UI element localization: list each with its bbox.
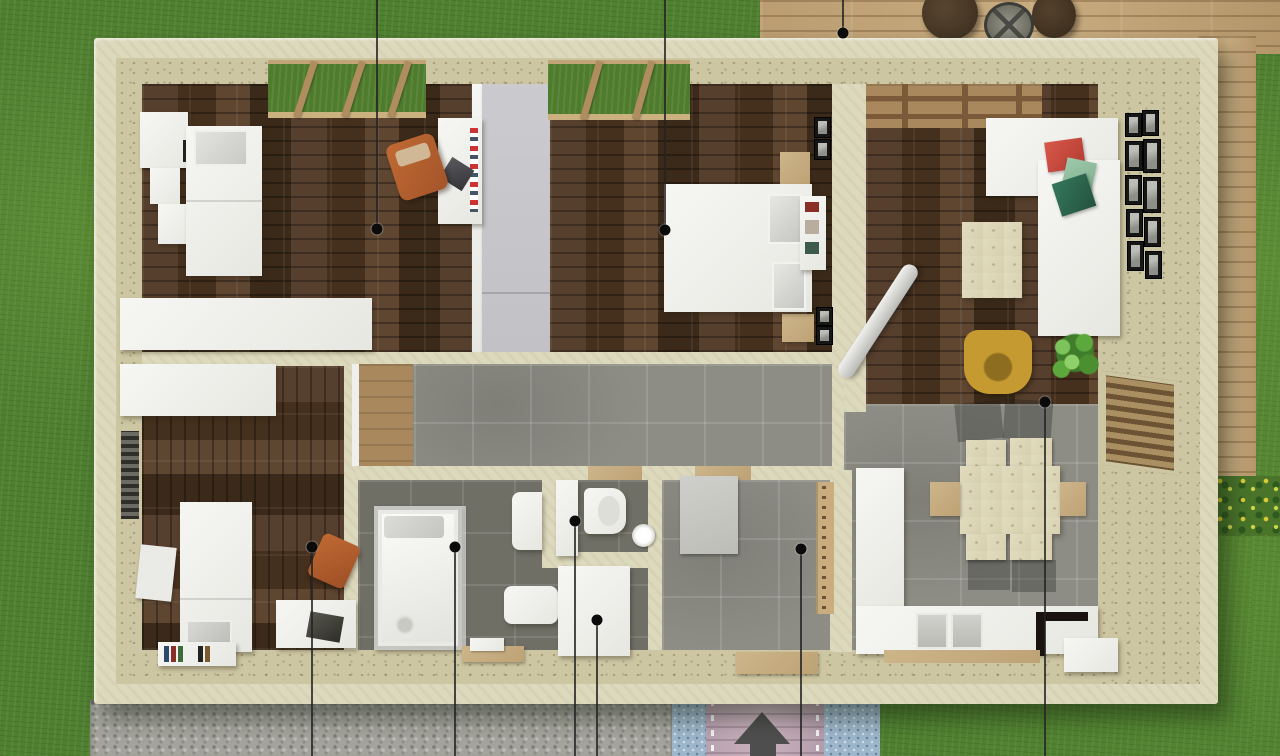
lounge-chair-mustard <box>964 330 1032 394</box>
chair-headrest <box>394 142 431 168</box>
dining-chair-left <box>930 482 960 516</box>
hotspot-dot[interactable] <box>372 224 383 235</box>
bed-fold <box>186 200 262 202</box>
leader-line <box>800 549 802 756</box>
wall-basin-1 <box>512 492 542 550</box>
book <box>205 646 210 662</box>
study-window <box>268 60 426 118</box>
walkway-border-left <box>672 700 706 756</box>
gallery-frame <box>1126 142 1142 170</box>
gallery-frame <box>1144 178 1160 212</box>
hallway-door-leaf <box>359 364 413 466</box>
nightstand-top <box>780 152 810 184</box>
window-mullion <box>632 60 655 120</box>
walkway-border-right <box>824 700 880 756</box>
window-mullion <box>580 60 603 120</box>
walkway-dash-right <box>816 700 819 756</box>
walkway-dash-left <box>711 700 714 756</box>
kitchen-island <box>1064 638 1118 672</box>
leader-line <box>454 547 456 756</box>
book <box>198 646 203 662</box>
chair-shadow <box>1012 560 1056 592</box>
headboard-decor <box>805 202 819 212</box>
bed-pillow-2 <box>774 264 804 308</box>
kitchen-plinth <box>884 650 1040 663</box>
hotspot-dot[interactable] <box>1040 397 1051 408</box>
headboard-decor <box>805 220 819 234</box>
entry-coat-rack <box>816 482 834 614</box>
coffee-table <box>962 222 1022 298</box>
kids-cabinet-row <box>120 364 276 416</box>
dining-chair-top <box>966 440 1006 467</box>
chair-shadow <box>968 560 1010 590</box>
headboard-decor <box>805 242 819 254</box>
utility-cabinet <box>558 566 630 656</box>
toilet-seat <box>598 496 620 526</box>
leader-line <box>376 0 378 229</box>
bed-fold <box>180 598 252 600</box>
shower-mat <box>384 516 444 538</box>
window-mullion <box>387 60 412 117</box>
book <box>178 646 183 662</box>
garden-bed <box>1214 476 1280 536</box>
coat-rack-hooks <box>822 486 826 610</box>
window-mullion <box>293 60 318 117</box>
wall-basin-2 <box>504 586 558 624</box>
hotspot-dot[interactable] <box>570 516 581 527</box>
study-bed-pillow <box>196 132 246 164</box>
floorplan-scene <box>0 0 1280 756</box>
entrance-arrow-icon <box>734 712 790 744</box>
study-shelf-step1 <box>140 112 188 168</box>
bedroom-wall-frame <box>817 308 832 325</box>
pergola-beam-v2 <box>962 84 968 128</box>
gallery-frame <box>1144 140 1160 172</box>
dining-chair-bottom <box>966 534 1006 560</box>
kitchen-sink-2 <box>951 613 983 649</box>
shower-enclosure <box>374 506 462 650</box>
kids-rug <box>135 544 176 601</box>
window-mullion <box>341 60 366 117</box>
shower-drain <box>394 614 416 636</box>
entrance-arrow-stem <box>750 744 776 756</box>
wardrobe-column <box>482 84 550 352</box>
leader-line <box>1044 402 1046 756</box>
pergola-beam-v1 <box>902 84 908 128</box>
gallery-frame <box>1145 218 1160 246</box>
bedroom-wall-frame <box>817 327 832 344</box>
bed-pillow-1 <box>770 196 800 242</box>
wardrobe-seam <box>482 292 550 294</box>
bedroom-wall-frame <box>815 118 830 137</box>
hotspot-dot[interactable] <box>796 544 807 555</box>
bath-towel <box>470 638 504 651</box>
shower-glass <box>462 506 466 650</box>
hallway-floor <box>356 364 832 466</box>
gravel-path <box>90 700 672 756</box>
nightstand-bottom <box>782 314 814 342</box>
kids-desk <box>276 600 356 648</box>
dining-chair-right <box>1060 482 1086 516</box>
hotspot-dot[interactable] <box>660 225 671 236</box>
bathroom-door-threshold <box>588 466 642 480</box>
bedroom-wall-frame <box>815 140 830 159</box>
entrance-walkway <box>706 700 824 756</box>
headboard-shelf <box>800 196 826 270</box>
toilet <box>584 488 626 534</box>
leader-line <box>596 620 598 756</box>
potted-plant <box>1044 326 1106 386</box>
gallery-frame <box>1127 210 1142 236</box>
study-bed <box>186 126 262 276</box>
leader-line <box>664 0 666 230</box>
entry-doormat <box>680 476 738 554</box>
hotspot-dot[interactable] <box>307 542 318 553</box>
book <box>171 646 176 662</box>
study-shelf-step2 <box>150 168 180 204</box>
door-frame <box>352 364 359 466</box>
kids-bookshelf <box>158 642 236 666</box>
leader-line <box>311 547 313 756</box>
gallery-frame <box>1126 114 1141 136</box>
bedroom-window <box>548 60 690 120</box>
toilet-paper-roll <box>632 524 655 547</box>
hotspot-dot[interactable] <box>450 542 461 553</box>
leader-line <box>574 521 576 756</box>
wall-bath-entry <box>648 480 662 650</box>
book <box>164 646 169 662</box>
front-door-threshold <box>736 652 818 674</box>
study-cabinet-row <box>120 298 372 350</box>
right-louver-window <box>1102 371 1178 476</box>
hotspot-dot[interactable] <box>592 615 603 626</box>
gallery-frame <box>1146 252 1161 278</box>
lawn-right-edge <box>1252 54 1280 756</box>
gallery-frame <box>1126 176 1141 204</box>
gallery-frame <box>1143 111 1158 135</box>
double-bed <box>664 184 812 312</box>
kids-louver-window <box>118 428 142 522</box>
gallery-frame <box>1128 242 1143 270</box>
kitchen-tall-units <box>856 468 904 608</box>
chair-shadow <box>954 400 1004 443</box>
hotspot-dot[interactable] <box>838 28 849 39</box>
kids-bed <box>180 502 252 652</box>
kitchen-sink-1 <box>916 613 948 649</box>
